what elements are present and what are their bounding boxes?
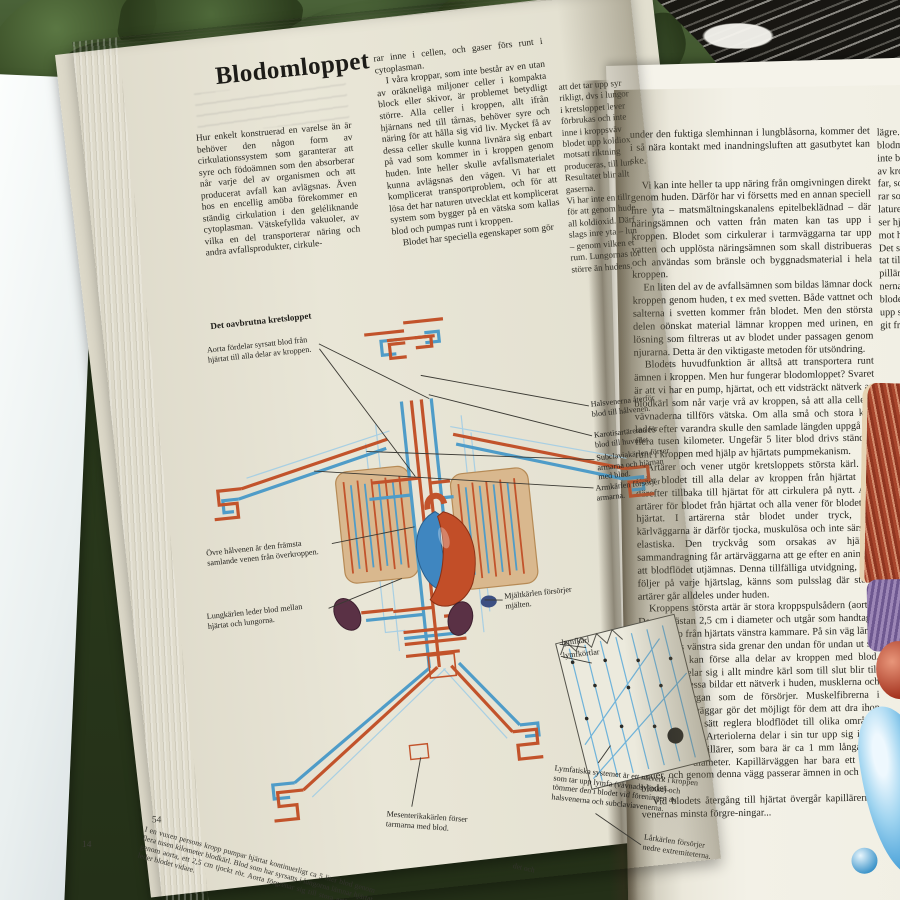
page-number: 54 bbox=[152, 815, 162, 825]
muscle-tissue-illustration bbox=[859, 383, 900, 584]
left-book-page: Blodomloppet Hur enkelt konstruerad en v… bbox=[72, 0, 721, 900]
paragraph: En liten del av de avfallsämnen som bild… bbox=[632, 279, 873, 360]
spleen bbox=[480, 595, 497, 609]
paragraph: Vi kan inte heller ta upp näring från om… bbox=[631, 176, 873, 283]
paragraph: under den fuktiga slemhinnan i lungblåso… bbox=[630, 126, 871, 169]
blue-sphere-illustration bbox=[851, 848, 877, 874]
right-page-second-column-fragment: lägre. D blodmä inte blo av krop far, so… bbox=[877, 127, 900, 383]
page-number-under: 14 bbox=[82, 840, 92, 850]
photo-of-open-book: 14 under den fuktiga slemhinnan i lungbl… bbox=[0, 0, 900, 900]
